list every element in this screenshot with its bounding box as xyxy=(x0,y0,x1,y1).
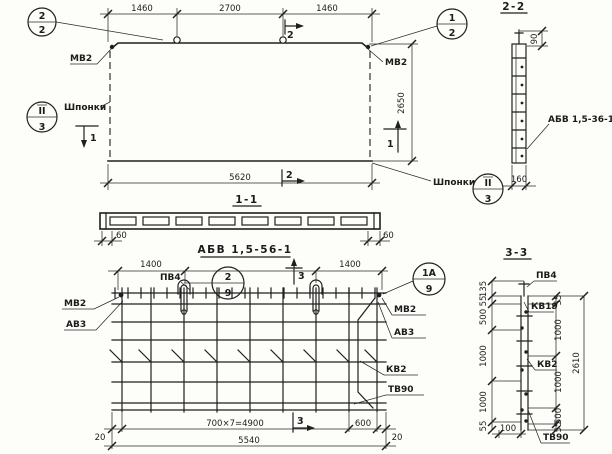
label-pv4-33: ПВ4 xyxy=(536,271,557,281)
dim-700x7: 700×7=4900 xyxy=(206,419,264,429)
label-mv2-right: МВ2 xyxy=(385,58,407,68)
label-mv2-plan-left: МВ2 xyxy=(64,299,86,309)
label-pv4-plan: ПВ4 xyxy=(160,273,181,283)
node-left-top: II xyxy=(38,106,45,117)
label-shponki-left: Шпонки xyxy=(64,103,106,113)
key-bump-right xyxy=(280,37,286,43)
callout-1a-9-bottom: 9 xyxy=(426,284,433,295)
dim-2650: 2650 xyxy=(397,92,407,114)
label-av3-plan-left: АВ3 xyxy=(66,320,86,330)
key-bump-left xyxy=(174,37,180,43)
label-kv19-33: КВ19 xyxy=(531,302,558,312)
drawing-sheet: 1460 2700 1460 2 2 2 МВ2 Шпонки II 3 1 xyxy=(0,0,612,454)
node-left-bottom: 3 xyxy=(39,122,46,133)
cut-2-top: 2 xyxy=(287,30,294,41)
callout-1-2-bottom: 2 xyxy=(449,28,456,39)
label-mv2-plan-right: МВ2 xyxy=(394,305,416,315)
dim-55-l1: 55 xyxy=(479,296,489,307)
label-kv2-plan: КВ2 xyxy=(386,365,406,375)
section-2-2-title: 2-2 xyxy=(502,1,525,13)
label-mv2-left: МВ2 xyxy=(70,54,92,64)
drawing-canvas: 1460 2700 1460 2 2 2 МВ2 Шпонки II 3 1 xyxy=(0,0,612,454)
dim-60-left: 60 xyxy=(116,231,127,241)
label-tv90-33: ТВ90 xyxy=(543,433,569,443)
dim-100: 100 xyxy=(500,424,516,434)
dim-55-l2: 55 xyxy=(479,421,489,432)
label-tv90-plan: ТВ90 xyxy=(388,385,414,395)
dim-1000-r2: 1000 xyxy=(554,371,564,393)
cut-3-bottom: 3 xyxy=(297,416,304,427)
dim-2610: 2610 xyxy=(572,352,582,374)
dim-1460-right: 1460 xyxy=(316,4,338,14)
callout-2-2-bottom: 2 xyxy=(39,25,46,36)
dim-5540: 5540 xyxy=(238,436,260,446)
dim-1000-l1: 1000 xyxy=(479,345,489,367)
node-right-top: II xyxy=(484,178,491,189)
dim-20-right: 20 xyxy=(392,433,403,443)
plan-view: АБВ 1,5-56-1 1400 1400 ПВ4 2 9 3 1А 9 МВ… xyxy=(62,244,445,450)
label-abv-1536: АБВ 1,5-36-1 xyxy=(548,115,612,125)
cut-3-top: 3 xyxy=(298,271,305,282)
dim-2700: 2700 xyxy=(219,4,241,14)
section-1-1-title: 1-1 xyxy=(235,194,258,206)
dim-500-l: 500 xyxy=(479,309,489,325)
strip-voids xyxy=(110,217,367,225)
dim-600: 600 xyxy=(355,419,371,429)
dim-135: 135 xyxy=(479,281,489,297)
anchor-dot-right xyxy=(366,45,370,49)
dim-1400-right: 1400 xyxy=(339,260,361,270)
section-3-3-title: 3-3 xyxy=(505,247,528,259)
dim-160: 160 xyxy=(511,175,527,185)
cut-2-bottom: 2 xyxy=(286,170,293,181)
callout-1a-9-top: 1А xyxy=(422,268,437,279)
label-av3-plan-right: АВ3 xyxy=(394,328,414,338)
dim-20-left: 20 xyxy=(95,433,106,443)
cut-1-left: 1 xyxy=(90,133,97,144)
dim-1460-left: 1460 xyxy=(131,4,153,14)
dim-1400-left: 1400 xyxy=(140,260,162,270)
dim-1000-l2: 1000 xyxy=(479,391,489,413)
section-3-3: 3-3 135 55 500 1000 1000 55 55 1000 1000… xyxy=(479,247,588,443)
callout-2-9-top: 2 xyxy=(225,272,232,283)
cut-1-right: 1 xyxy=(387,139,394,150)
callout-1-2-top: 1 xyxy=(449,13,456,24)
top-view: 1460 2700 1460 2 2 2 МВ2 Шпонки II 3 1 xyxy=(27,4,503,205)
section-1-1: 1-1 60 60 xyxy=(94,194,394,246)
dim-5620: 5620 xyxy=(229,173,251,183)
dim-90: 90 xyxy=(530,34,540,45)
label-shponki-right: Шпонки xyxy=(433,178,475,188)
label-kv2-33: КВ2 xyxy=(537,360,557,370)
section-2-2: 2-2 90 АБВ 1,5-36-1 160 xyxy=(501,1,612,190)
dim-1000-r1: 1000 xyxy=(554,319,564,341)
dim-60-right: 60 xyxy=(383,231,394,241)
callout-2-2-top: 2 xyxy=(39,11,46,22)
node-right-bottom: 3 xyxy=(485,194,492,205)
dim-55-r2: 55 xyxy=(554,422,564,433)
plan-title: АБВ 1,5-56-1 xyxy=(197,244,292,256)
